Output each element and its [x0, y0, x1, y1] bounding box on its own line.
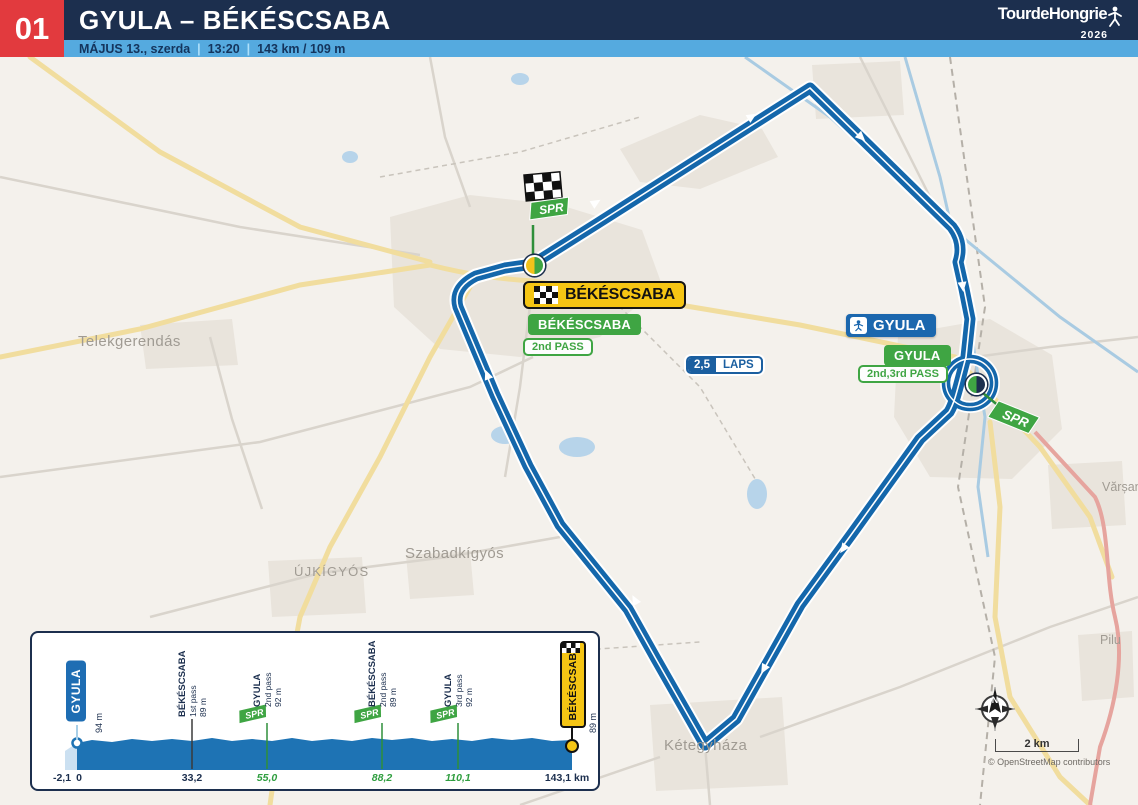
scale-bar: 2 km — [995, 739, 1079, 752]
stage-distance: 143 km / 109 m — [257, 42, 345, 56]
start-town-sign: GYULA — [846, 314, 936, 337]
stage-number-badge: 01 — [0, 0, 64, 57]
start-drop-line — [76, 725, 78, 740]
profile-marker-label: GYULA 2nd pass 92 m — [253, 673, 283, 708]
finish-town-sign: BÉKÉSCSABA — [523, 281, 686, 309]
cyclist-icon — [1107, 6, 1122, 28]
km-label: 33,2 — [182, 772, 202, 784]
km-label-zero: 0 — [76, 772, 82, 784]
stage-map-page: 01 GYULA – BÉKÉSCSABA MÁJUS 13., szerda … — [0, 0, 1138, 805]
town-label-ujkigyos: ÚJKÍGYÓS — [294, 564, 369, 579]
logo-year: 2026 — [998, 30, 1108, 41]
town-label-telekgerendas: Telekgerendás — [78, 333, 181, 350]
town-label-pilu: Pilu — [1100, 633, 1121, 647]
tour-mini-logo — [850, 317, 867, 334]
profile-finish-sign: BÉKÉSCSABA — [560, 641, 586, 728]
tour-de-hongrie-logo: TourdeHongrie 2026 — [998, 6, 1122, 41]
route-map: SPR SPR N Telekgerendás Szabadkígyós — [0, 57, 1138, 805]
bekescsaba-pass-sign: BÉKÉSCSABA — [528, 314, 641, 335]
profile-canvas: SPR SPR SPR — [32, 633, 597, 788]
elevation-area — [77, 738, 572, 770]
finish-town-name: BÉKÉSCSABA — [565, 286, 675, 304]
start-elevation: 94 m — [94, 713, 104, 733]
gyula-pass-sign: GYULA — [884, 345, 951, 366]
checkered-icon — [534, 286, 558, 304]
km-label-sprint: 55,0 — [257, 772, 277, 784]
profile-finish-dot — [566, 740, 578, 752]
bekescsaba-pass-note: 2nd PASS — [523, 338, 593, 356]
logo-text: TourdeHongrie — [998, 6, 1107, 23]
finish-elevation: 89 m — [588, 713, 598, 733]
separator: | — [197, 42, 201, 56]
scale-label: 2 km — [1024, 738, 1049, 750]
map-attribution: © OpenStreetMap contributors — [988, 757, 1110, 767]
profile-marker-label: BÉKÉSCSABA 2nd pass 89 m — [368, 640, 398, 707]
profile-marker-label: GYULA 3rd pass 92 m — [444, 674, 474, 707]
elevation-profile: SPR SPR SPR GYULA 94 m BÉKÉSCSABA — [30, 631, 600, 791]
start-marker — [966, 374, 987, 395]
finish-marker — [524, 255, 545, 276]
stage-title: GYULA – BÉKÉSCSABA — [79, 5, 391, 36]
km-label-sprint: 110,1 — [445, 772, 471, 784]
gyula-pass-note: 2nd,3rd PASS — [858, 365, 948, 383]
finish-flag-icon — [524, 172, 562, 201]
km-label-neutral: -2,1 — [53, 772, 71, 784]
km-label-finish: 143,1 km — [545, 772, 589, 784]
separator: | — [247, 42, 251, 56]
laps-value: 2,5 — [688, 358, 716, 372]
profile-marker-label: BÉKÉSCSABA 1st pass 89 m — [178, 650, 208, 717]
stage-number: 01 — [15, 11, 49, 47]
laps-label: LAPS — [716, 358, 761, 372]
profile-start-sign: GYULA — [66, 661, 86, 722]
header-bar: GYULA – BÉKÉSCSABA — [64, 0, 1138, 40]
header-subbar: MÁJUS 13., szerda | 13:20 | 143 km / 109… — [64, 40, 1138, 57]
checkered-strip — [562, 643, 580, 653]
town-label-varsand: Vărșand — [1102, 480, 1138, 494]
stage-date: MÁJUS 13., szerda — [79, 42, 190, 56]
town-label-szabadkigyos: Szabadkígyós — [405, 545, 504, 562]
start-town-name: GYULA — [873, 317, 926, 334]
svg-text:N: N — [992, 695, 999, 705]
km-label-sprint: 88,2 — [372, 772, 392, 784]
laps-badge: 2,5 LAPS — [686, 356, 763, 374]
town-label-ketegyhaza: Kétegyháza — [664, 737, 747, 754]
stage-start-time: 13:20 — [208, 42, 240, 56]
